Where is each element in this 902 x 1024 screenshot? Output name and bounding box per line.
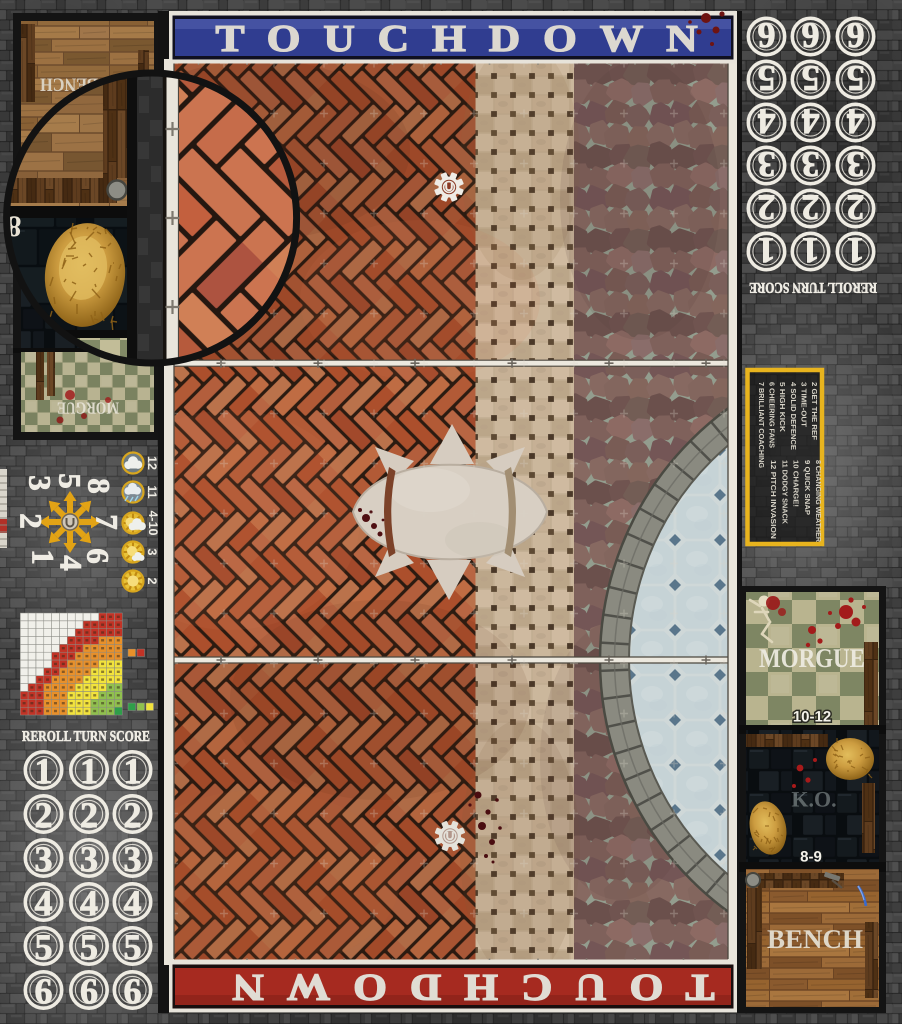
svg-text:12: 12 [145,456,159,470]
svg-text:6 CHEERING FANS: 6 CHEERING FANS [768,382,777,448]
svg-text:5: 5 [758,59,776,99]
svg-text:5: 5 [802,59,820,99]
svg-text:MORGUE: MORGUE [759,643,865,673]
svg-text:11 DODGY SNACK: 11 DODGY SNACK [780,460,789,525]
svg-text:3 TIME-OUT: 3 TIME-OUT [799,382,808,428]
svg-text:2: 2 [124,795,142,835]
svg-text:6: 6 [847,16,865,56]
svg-text:10-12: 10-12 [793,709,831,726]
svg-text:2: 2 [758,188,776,228]
svg-text:TOUCHDOWN: TOUCHDOWN [216,18,721,60]
svg-text:6: 6 [758,16,776,56]
svg-text:12 PITCH INVASION: 12 PITCH INVASION [769,460,778,539]
svg-text:10 CHARGE!: 10 CHARGE! [792,460,801,507]
svg-text:4: 4 [802,102,820,142]
svg-text:2: 2 [802,188,820,228]
svg-text:3: 3 [758,145,776,185]
svg-text:3: 3 [35,839,53,879]
svg-text:2: 2 [145,578,159,585]
svg-text:4-10: 4-10 [146,510,160,535]
svg-text:1: 1 [35,751,53,791]
svg-text:6: 6 [35,971,53,1011]
svg-text:9 QUICK SNAP: 9 QUICK SNAP [803,460,812,515]
svg-text:8 CHANGING WEATHER: 8 CHANGING WEATHER [814,460,823,543]
svg-text:3: 3 [145,549,159,556]
svg-text:3: 3 [124,839,142,879]
svg-text:6: 6 [124,971,142,1011]
svg-text:2: 2 [847,188,865,228]
svg-text:4: 4 [80,883,98,923]
svg-text:1: 1 [802,231,820,271]
svg-text:2: 2 [35,795,53,835]
svg-text:1: 1 [758,231,776,271]
svg-text:4: 4 [124,883,142,923]
svg-text:4: 4 [847,102,865,142]
svg-text:6: 6 [81,548,116,564]
svg-text:4: 4 [758,102,776,142]
svg-text:K.O.: K.O. [791,787,836,812]
svg-text:1: 1 [124,751,142,791]
svg-text:5: 5 [124,927,142,967]
svg-text:3: 3 [80,839,98,879]
svg-text:4 SOLID DEFENCE: 4 SOLID DEFENCE [789,382,798,450]
svg-text:6: 6 [80,971,98,1011]
svg-text:5: 5 [847,59,865,99]
svg-text:7 BRILLIANT COACHING: 7 BRILLIANT COACHING [757,382,766,468]
svg-text:5 HIGH KICK: 5 HIGH KICK [778,382,787,433]
svg-text:2: 2 [80,795,98,835]
svg-text:3: 3 [802,145,820,185]
svg-text:4: 4 [35,883,53,923]
svg-text:BENCH: BENCH [767,924,863,954]
svg-text:REROLL TURN SCORE: REROLL TURN SCORE [749,279,877,295]
svg-text:3: 3 [23,475,58,491]
svg-text:8: 8 [82,478,117,494]
svg-text:REROLL TURN SCORE: REROLL TURN SCORE [22,729,150,745]
svg-text:TOUCHDOWN: TOUCHDOWN [210,966,715,1008]
svg-text:2 GET THE REF: 2 GET THE REF [810,382,819,441]
svg-text:5: 5 [35,927,53,967]
svg-text:6: 6 [802,16,820,56]
svg-text:1: 1 [847,231,865,271]
svg-text:2: 2 [14,513,49,529]
svg-text:7: 7 [90,514,125,530]
svg-text:1: 1 [80,751,98,791]
svg-text:11: 11 [145,485,159,498]
svg-text:3: 3 [847,145,865,185]
svg-text:5: 5 [80,927,98,967]
